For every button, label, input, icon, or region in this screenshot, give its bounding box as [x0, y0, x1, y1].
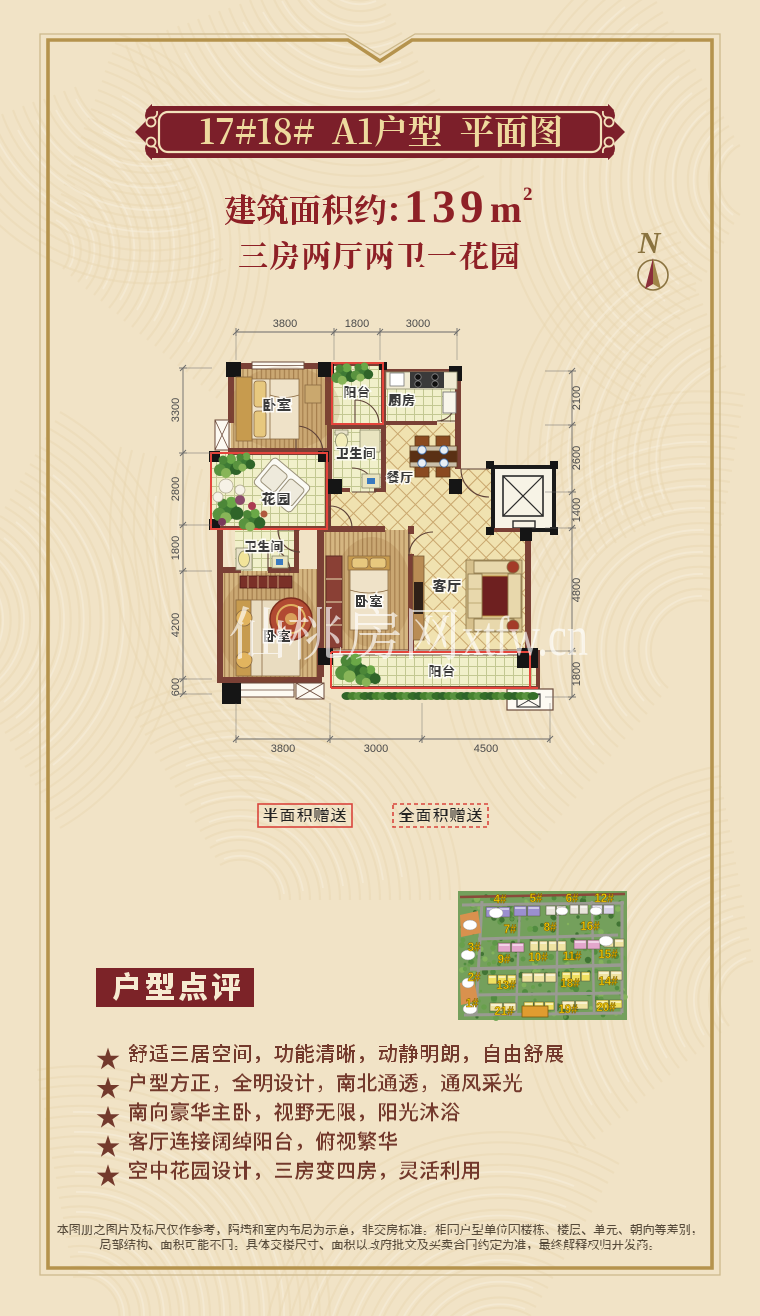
svg-text:3000: 3000 [406, 318, 430, 330]
svg-text:21#: 21# [494, 1006, 514, 1018]
svg-text:3000: 3000 [364, 743, 388, 755]
svg-text:2: 2 [523, 184, 533, 205]
svg-text:20#: 20# [596, 1002, 616, 1014]
svg-text:1800: 1800 [345, 318, 369, 330]
svg-text:9#: 9# [498, 954, 511, 966]
svg-text:2100: 2100 [571, 386, 583, 410]
svg-text:3800: 3800 [273, 318, 297, 330]
svg-text:5#: 5# [530, 893, 543, 905]
svg-text:3800: 3800 [271, 743, 295, 755]
svg-text:19#: 19# [558, 1004, 578, 1016]
svg-text:1800: 1800 [170, 536, 182, 560]
svg-text:8#: 8# [544, 922, 557, 934]
svg-text:4500: 4500 [474, 743, 498, 755]
svg-text:4#: 4# [494, 894, 507, 906]
svg-text:2600: 2600 [571, 446, 583, 470]
svg-text:3300: 3300 [170, 398, 182, 422]
svg-text:6#: 6# [566, 893, 579, 905]
svg-text:16#: 16# [580, 921, 600, 933]
svg-text:1#: 1# [466, 998, 479, 1010]
svg-text:xtfw.cn: xtfw.cn [462, 606, 588, 668]
svg-text:600: 600 [170, 678, 182, 696]
svg-text:12#: 12# [594, 893, 614, 905]
svg-text:139: 139 [404, 181, 488, 233]
svg-text:7#: 7# [504, 924, 517, 936]
svg-text:4800: 4800 [571, 578, 583, 602]
svg-text:10#: 10# [528, 952, 548, 964]
svg-text:2800: 2800 [170, 477, 182, 501]
svg-text:2#: 2# [468, 972, 481, 984]
svg-text:3#: 3# [468, 942, 481, 954]
svg-text:1400: 1400 [571, 498, 583, 522]
svg-text:13#: 13# [496, 980, 516, 992]
svg-text:4200: 4200 [170, 613, 182, 637]
svg-text:N: N [637, 225, 662, 260]
svg-text:11#: 11# [563, 951, 582, 963]
svg-text:m: m [490, 189, 522, 231]
svg-text:14#: 14# [598, 976, 618, 988]
svg-text:15#: 15# [598, 949, 618, 961]
svg-text:18#: 18# [560, 978, 580, 990]
